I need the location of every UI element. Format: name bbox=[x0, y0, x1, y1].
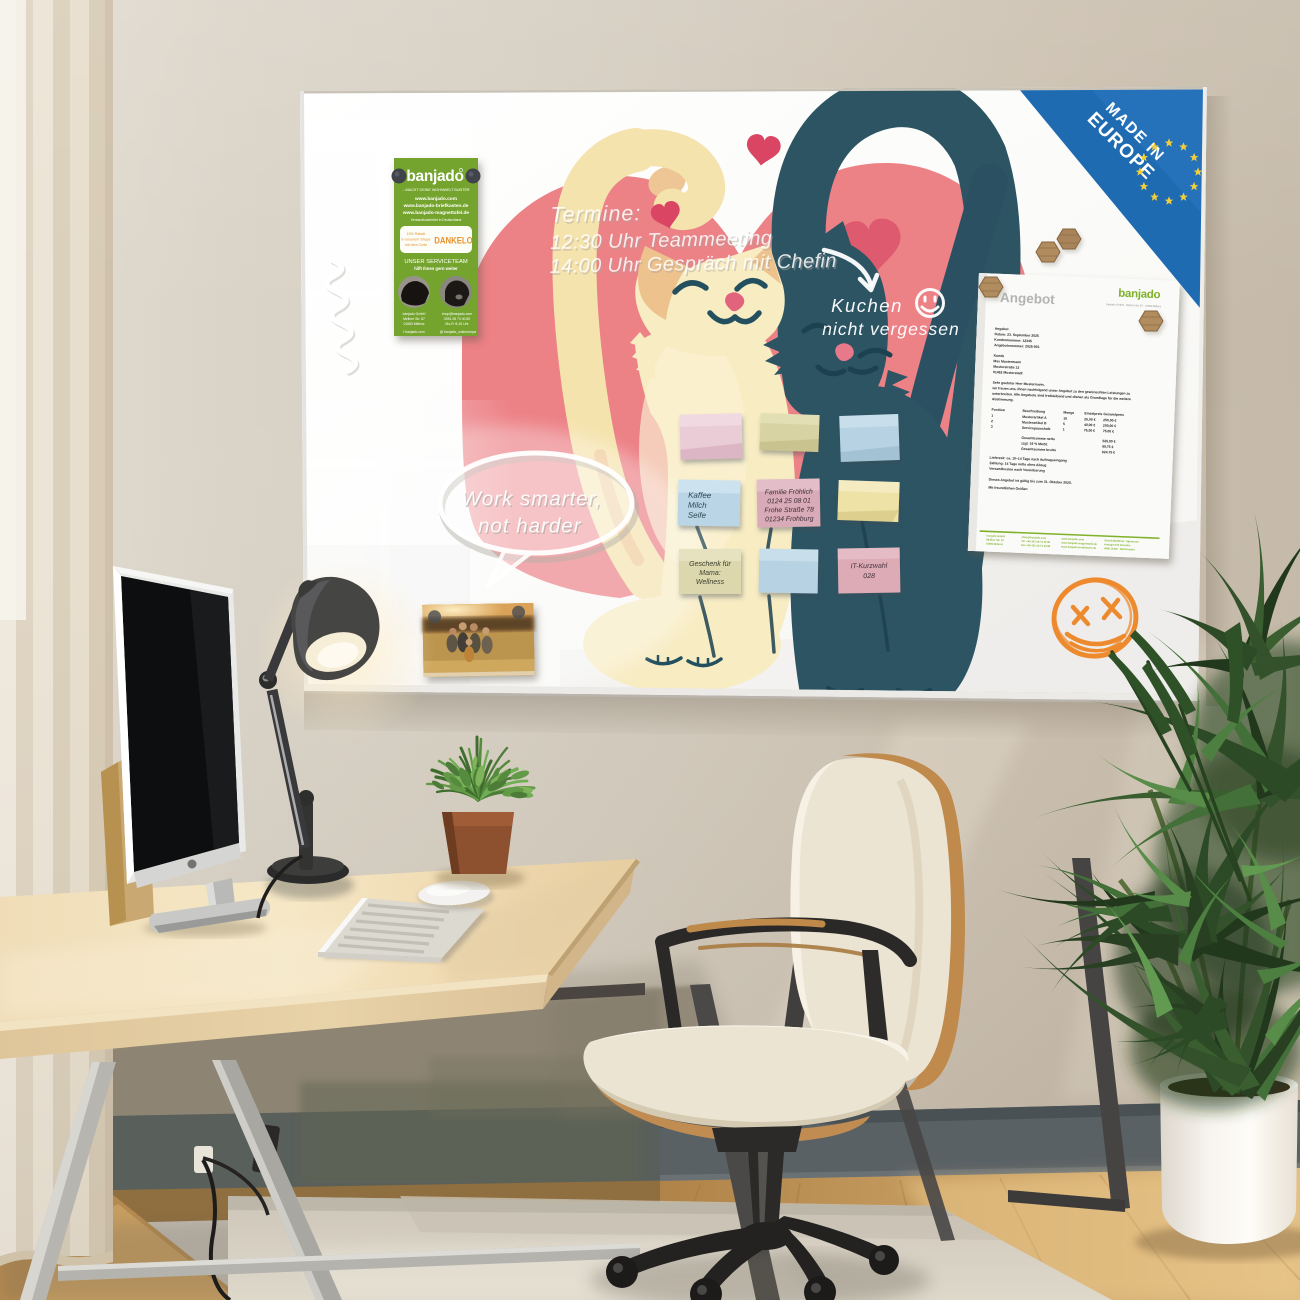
svg-text:in unserem Shops: in unserem Shops bbox=[402, 238, 431, 242]
svg-text:0351 28 73 40 80: 0351 28 73 40 80 bbox=[444, 317, 471, 321]
svg-text:www.banjado-magnettafel.de: www.banjado-magnettafel.de bbox=[402, 210, 470, 216]
svg-text:Geschenk für: Geschenk für bbox=[689, 561, 731, 568]
svg-text:12:30 Uhr Teammeeting: 12:30 Uhr Teammeeting bbox=[550, 227, 773, 254]
svg-text:Familie Fröhlich: Familie Fröhlich bbox=[765, 489, 813, 497]
svg-text:10: 10 bbox=[1063, 416, 1067, 420]
svg-text:Menge: Menge bbox=[1063, 411, 1074, 415]
svg-text:Termine:: Termine: bbox=[550, 201, 641, 227]
svg-text:5: 5 bbox=[1063, 422, 1065, 426]
svg-text:shop@banjado.com: shop@banjado.com bbox=[442, 312, 472, 316]
svg-text:25,00 €: 25,00 € bbox=[1084, 417, 1096, 421]
svg-text:1: 1 bbox=[991, 414, 993, 418]
svg-text:banjado: banjado bbox=[1118, 288, 1161, 302]
svg-text:banjado GmbH: banjado GmbH bbox=[986, 534, 1005, 539]
svg-text:Position: Position bbox=[991, 408, 1005, 413]
svg-text:250,00 €: 250,00 € bbox=[1103, 418, 1116, 423]
svg-text:Versandkostenfrei in Deutschla: Versandkostenfrei in Deutschland bbox=[411, 218, 462, 222]
svg-text:Mellner Str. 87: Mellner Str. 87 bbox=[986, 538, 1004, 543]
svg-text:0124 25 08 01: 0124 25 08 01 bbox=[767, 498, 811, 506]
svg-text:Mellner Str. 87: Mellner Str. 87 bbox=[403, 317, 425, 321]
svg-text:15% Rabatt: 15% Rabatt bbox=[407, 232, 426, 236]
svg-text:Wellness: Wellness bbox=[696, 579, 725, 586]
svg-text:Kaffee: Kaffee bbox=[688, 491, 712, 500]
svg-text:...MACHT DEINE WOHNWELT BUNTER: ...MACHT DEINE WOHNWELT BUNTER bbox=[402, 188, 470, 192]
svg-text:Angebot: Angebot bbox=[995, 327, 1010, 332]
svg-text:f banjado.com: f banjado.com bbox=[403, 330, 424, 334]
svg-text:2: 2 bbox=[991, 419, 993, 423]
svg-text:75,00 €: 75,00 € bbox=[1084, 428, 1096, 432]
svg-text:40,00 €: 40,00 € bbox=[1084, 423, 1096, 427]
svg-text:banjado: banjado bbox=[406, 168, 463, 185]
svg-text:www.banjado.com: www.banjado.com bbox=[414, 196, 457, 202]
svg-text:525,00 €: 525,00 € bbox=[1102, 439, 1115, 444]
svg-text:nicht vergessen: nicht vergessen bbox=[822, 319, 960, 339]
svg-text:banjado GmbH: banjado GmbH bbox=[403, 312, 426, 316]
svg-text:Mo-Fr 8-15 Uhr: Mo-Fr 8-15 Uhr bbox=[445, 322, 469, 326]
svg-text:3: 3 bbox=[991, 425, 993, 429]
svg-text:01683 Miltenz: 01683 Miltenz bbox=[986, 542, 1004, 547]
svg-text:hilft Ihnen gern weiter: hilft Ihnen gern weiter bbox=[414, 266, 458, 271]
svg-text:01234 Frohburg: 01234 Frohburg bbox=[765, 516, 814, 524]
svg-text:Mama:: Mama: bbox=[699, 570, 720, 577]
svg-text:028: 028 bbox=[863, 573, 875, 580]
svg-text:Work smarter,: Work smarter, bbox=[462, 488, 603, 511]
svg-text:IT-Kurzwahl: IT-Kurzwahl bbox=[851, 563, 888, 571]
svg-text:Kunde: Kunde bbox=[994, 354, 1005, 358]
svg-text:not harder: not harder bbox=[478, 515, 582, 538]
svg-text:Milch: Milch bbox=[688, 501, 707, 510]
svg-text:Frohe Straße 78: Frohe Straße 78 bbox=[764, 507, 814, 515]
svg-text:Angebot: Angebot bbox=[1000, 290, 1056, 307]
svg-text:1: 1 bbox=[1063, 427, 1065, 431]
svg-text:DANKELO: DANKELO bbox=[434, 235, 473, 246]
svg-text:Seife: Seife bbox=[688, 511, 707, 520]
svg-text:99,75 €: 99,75 € bbox=[1102, 445, 1114, 449]
svg-text:Einzelpreis: Einzelpreis bbox=[1084, 411, 1102, 416]
svg-text:75,00 €: 75,00 € bbox=[1103, 429, 1115, 433]
svg-text:Gesamtpreis: Gesamtpreis bbox=[1103, 412, 1124, 417]
svg-text:200,00 €: 200,00 € bbox=[1103, 424, 1116, 429]
svg-text:Kuchen: Kuchen bbox=[831, 295, 903, 316]
svg-text:624,75 €: 624,75 € bbox=[1102, 450, 1115, 455]
svg-text:mit dem Code: mit dem Code bbox=[405, 243, 427, 247]
svg-text:@ banjado_onlineshops: @ banjado_onlineshops bbox=[440, 330, 477, 334]
svg-text:01683 Miltenz: 01683 Miltenz bbox=[403, 322, 424, 326]
svg-text:UNSER SERVICETEAM: UNSER SERVICETEAM bbox=[404, 259, 468, 265]
svg-text:www.banjado-briefkasten.de: www.banjado-briefkasten.de bbox=[403, 203, 469, 209]
